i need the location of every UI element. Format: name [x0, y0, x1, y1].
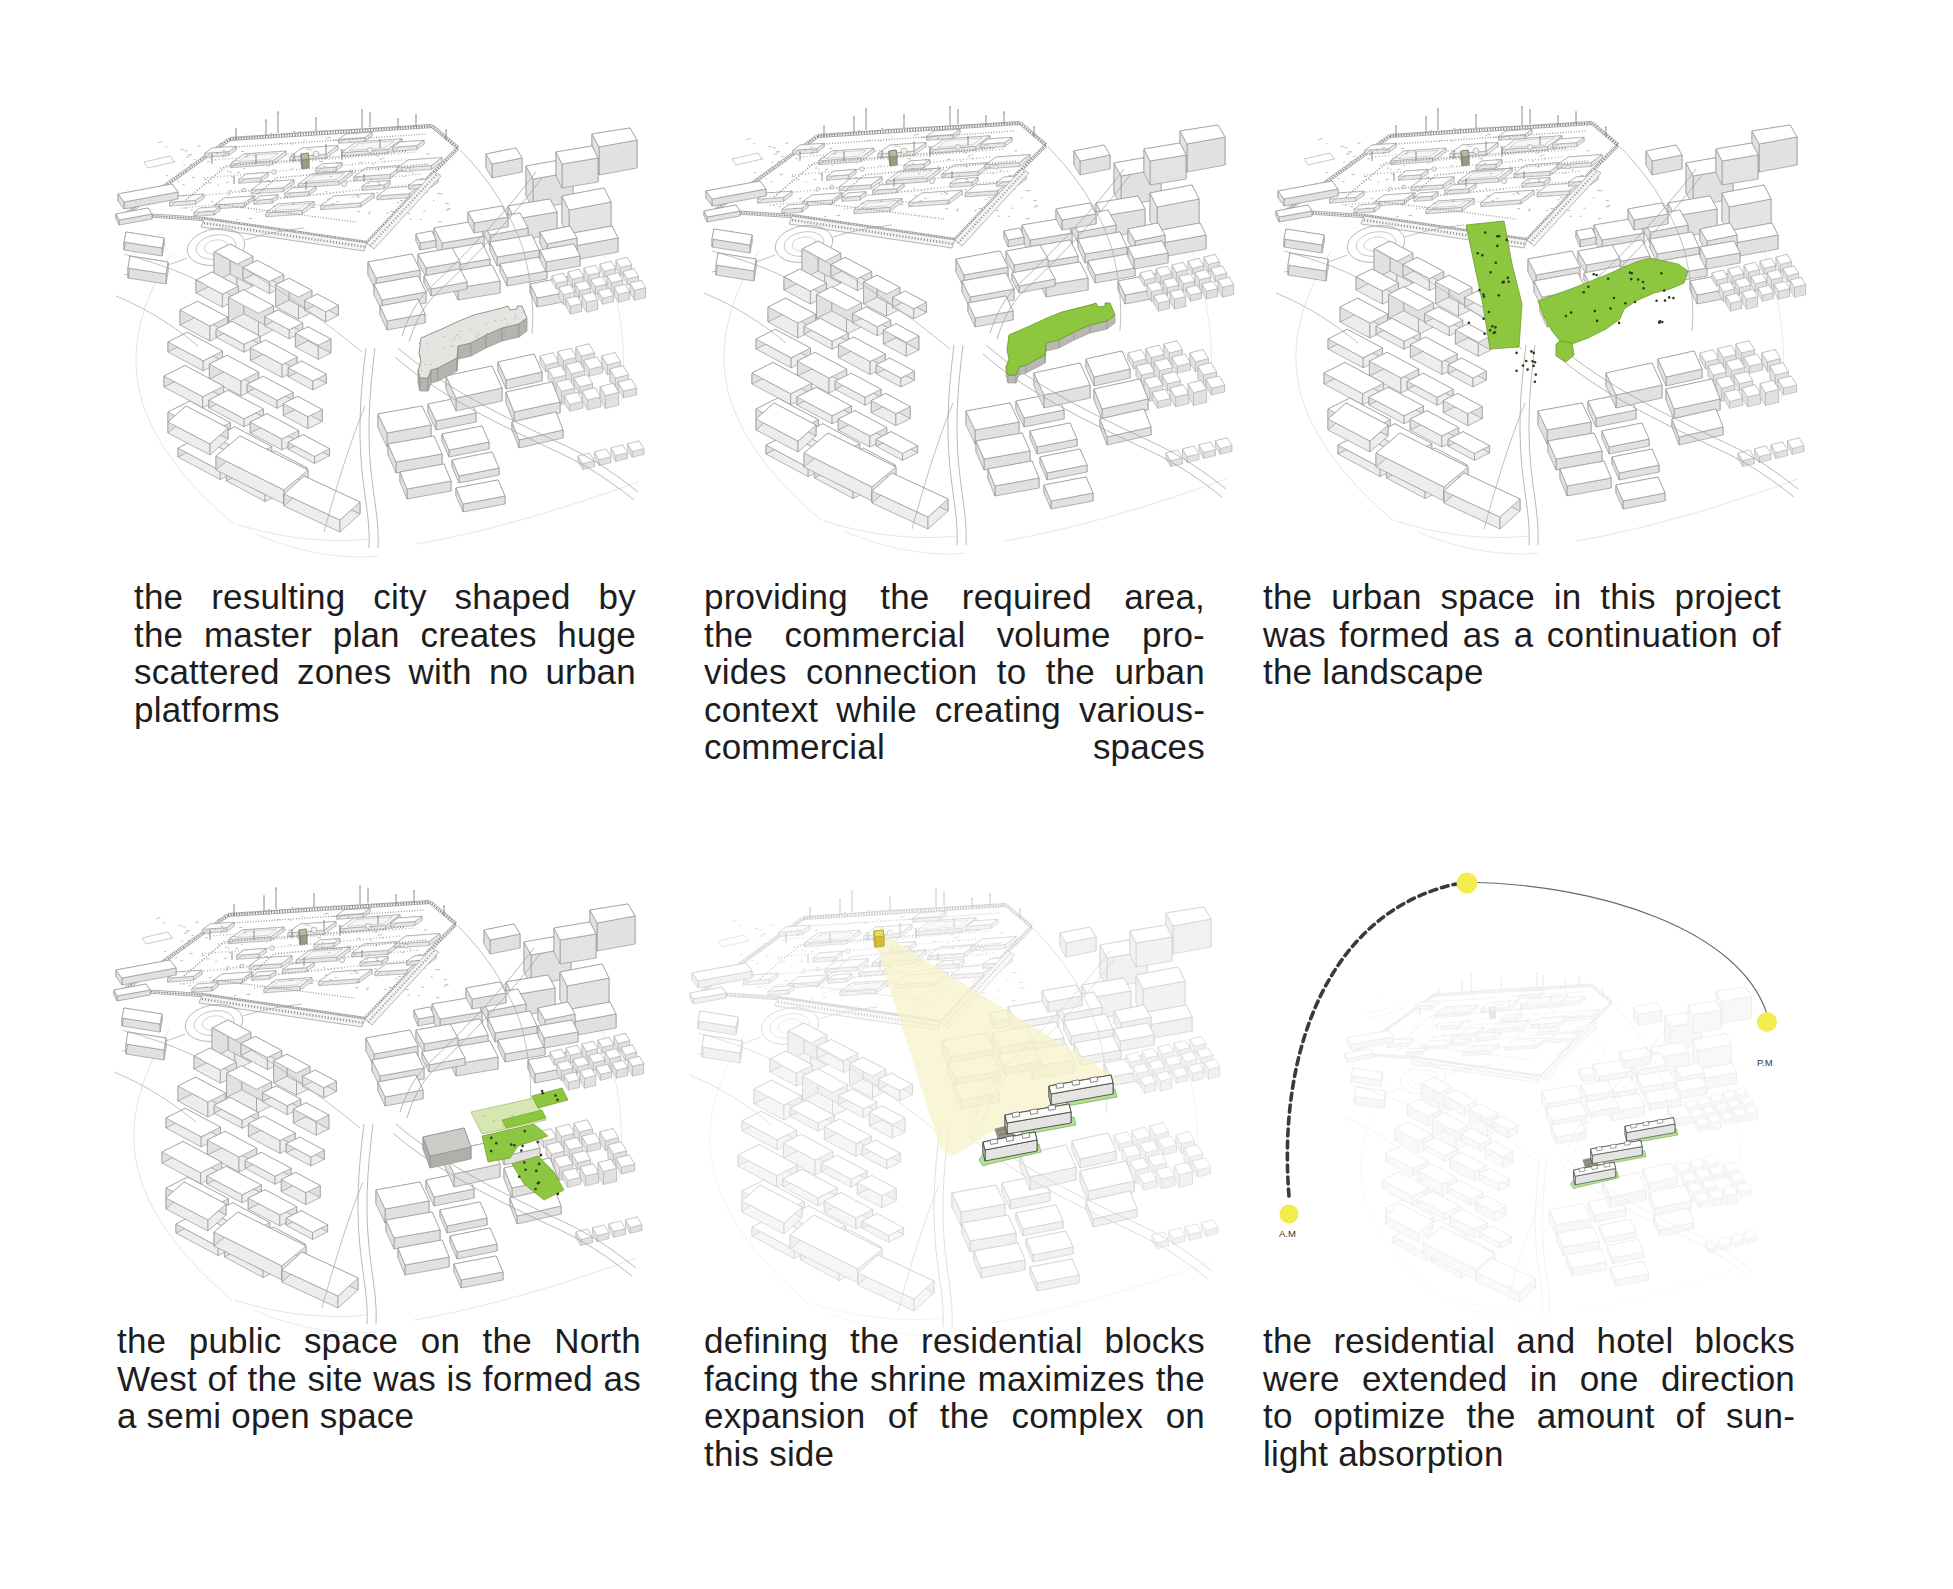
- svg-text:A.M: A.M: [1279, 1228, 1296, 1239]
- svg-text:P.M: P.M: [1757, 1057, 1773, 1068]
